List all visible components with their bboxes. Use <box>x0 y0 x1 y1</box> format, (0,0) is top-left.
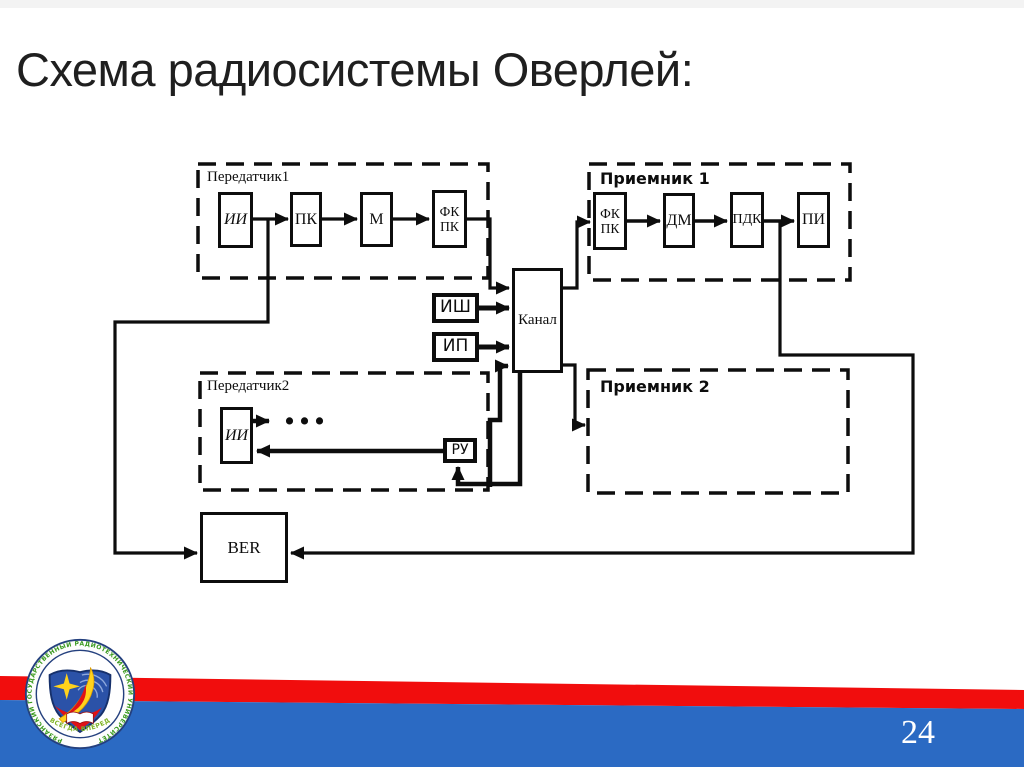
diagram-wires <box>0 0 1024 767</box>
wire-channel-to-rx1 <box>563 222 590 288</box>
block-rx1-fkpk-line2: ПК <box>601 221 620 236</box>
wire-channel-to-rx2 <box>563 365 585 425</box>
block-ber: BER <box>200 512 288 583</box>
block-rx1-dm: ДМ <box>663 193 695 248</box>
label-transmitter1: Передатчик1 <box>207 169 289 186</box>
block-noise-source: ИШ <box>432 293 479 323</box>
block-ru: РУ <box>443 438 477 463</box>
block-tx1-fkpk: ФК ПК <box>432 190 467 248</box>
wire-tx2-to-channel <box>490 366 508 487</box>
block-channel: Канал <box>512 268 563 373</box>
block-rx1-pi: ПИ <box>797 192 830 248</box>
ellipsis-omitted-blocks: ... <box>284 388 329 432</box>
block-tx1-fkpk-line2: ПК <box>440 219 459 234</box>
label-receiver1: Приемник 1 <box>600 169 710 188</box>
block-tx1-pk: ПК <box>290 192 322 247</box>
block-rx1-fkpk: ФК ПК <box>593 192 627 250</box>
university-logo: РЯЗАНСКИЙ ГОСУДАРСТВЕННЫЙ РАДИОТЕХНИЧЕСК… <box>23 637 137 751</box>
block-interference-source: ИП <box>432 332 479 362</box>
block-tx2-ii: ИИ <box>220 407 253 464</box>
block-rx1-fkpk-line1: ФК <box>600 206 620 221</box>
block-tx1-fkpk-line1: ФК <box>440 204 460 219</box>
label-transmitter2: Передатчик2 <box>207 378 289 395</box>
page-number: 24 <box>901 714 935 752</box>
block-tx1-m: М <box>360 192 393 247</box>
label-receiver2: Приемник 2 <box>600 377 710 396</box>
logo-book <box>67 712 94 723</box>
slide: Схема радиосистемы Оверлей: <box>0 0 1024 767</box>
block-tx1-ii: ИИ <box>218 192 253 248</box>
block-rx1-pdk: ПДК <box>730 192 764 248</box>
